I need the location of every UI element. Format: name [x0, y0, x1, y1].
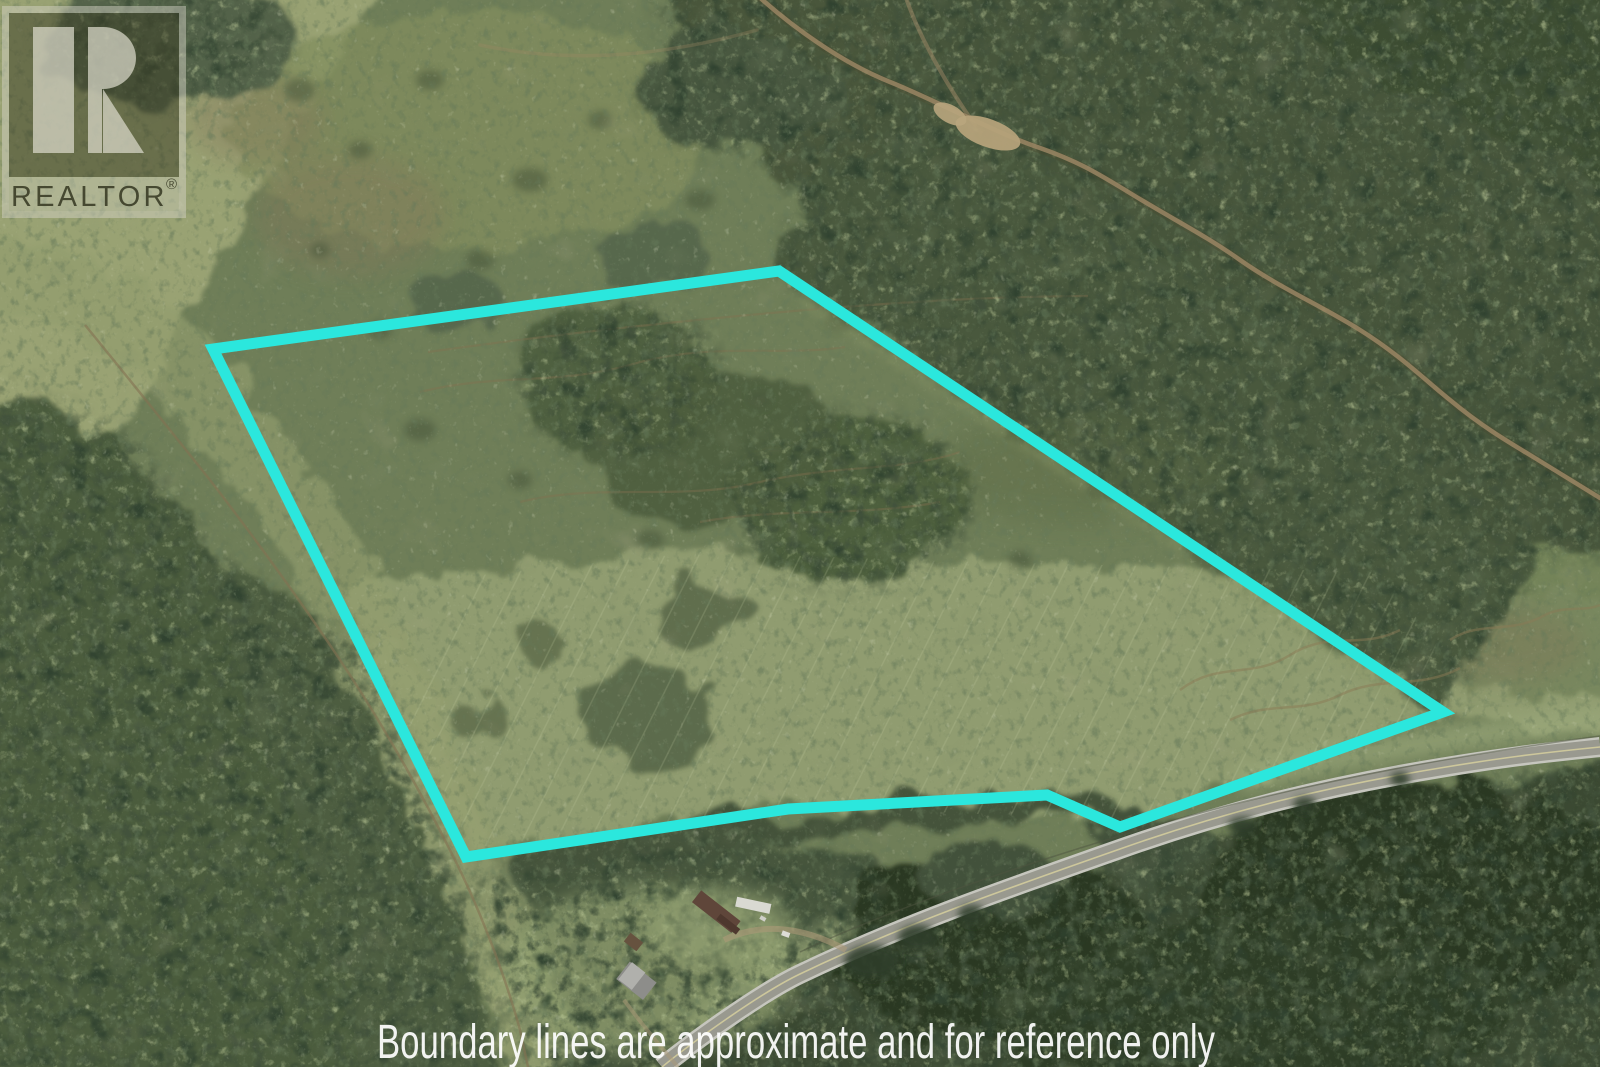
svg-text:REALTOR: REALTOR	[11, 181, 168, 213]
svg-text:®: ®	[166, 176, 177, 193]
svg-text:Boundary lines are approximate: Boundary lines are approximate and for r…	[377, 1016, 1215, 1067]
